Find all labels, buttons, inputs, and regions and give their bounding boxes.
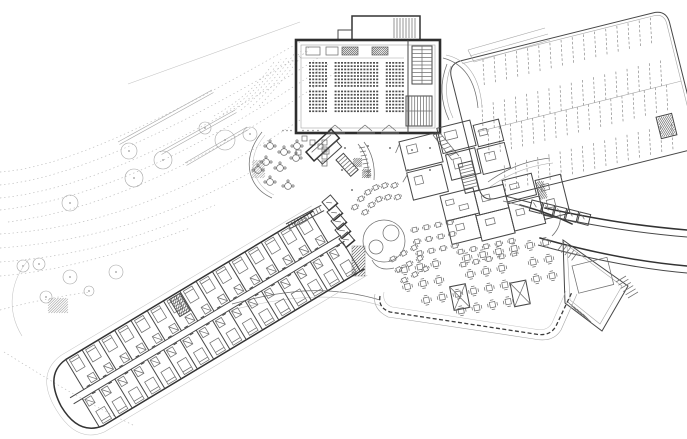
dining-table [421,295,432,306]
tree [33,258,45,270]
dining-table [430,258,441,269]
wing-room [529,200,542,213]
dining-table [524,240,535,251]
site-boundary-line [128,22,300,84]
stair-east [406,96,432,126]
column-dot [429,169,431,171]
round-table [264,140,276,150]
dining-table [484,282,495,293]
dining-table [487,299,498,310]
dining-table [499,279,510,290]
round-table [264,176,276,186]
promenade-path [228,291,382,311]
round-table [278,146,290,156]
stage-tower [338,16,420,40]
tree [121,143,137,159]
threshold-dots [312,130,314,132]
terrace-edge [12,258,30,336]
terrace-edge [375,294,577,340]
auditorium [282,16,482,160]
cafe [249,129,358,198]
column-dot [429,147,431,149]
dining-table [456,305,467,316]
service-station [510,280,530,307]
dining-table [547,270,558,281]
tree [215,130,235,150]
circular-lounge [363,220,405,269]
table-cluster [411,219,459,256]
column-dot [341,169,343,171]
drive-arc [443,58,478,108]
round-table [282,180,294,190]
seating-area [309,62,404,112]
floor-plan-canvas [0,0,687,439]
table-cluster [389,244,430,284]
rooms-south [82,242,360,428]
threshold-dots [307,130,309,132]
dining-table [465,269,476,280]
dining-table [493,246,504,257]
tree [243,127,257,141]
threshold-dots [302,130,304,132]
rooms-north [66,213,328,390]
site-landscape [0,22,336,426]
corridor [70,235,341,398]
parking-garage [448,10,687,202]
retaining-walls [118,90,249,166]
dining-table [531,273,542,284]
parking-stalls [466,18,682,194]
stair-north [412,46,432,84]
dining-table [433,275,444,286]
dining-terrace [375,237,577,340]
colonnade [380,292,572,335]
stair-fan [568,302,591,322]
floor-plan-drawing [0,0,687,439]
dining-table [480,266,491,277]
hotel-wing [33,199,367,439]
table-cluster [347,176,404,219]
office-room [477,142,510,174]
reception-desk [306,129,345,167]
tree [109,265,123,279]
dining-table [418,278,429,289]
round-table [291,140,303,150]
planter [322,154,327,159]
threshold-dots [317,130,319,132]
column-dot [407,169,409,171]
dining-table [503,296,514,307]
curved-ramp [358,142,374,180]
trees [17,122,257,303]
threshold-dots [282,130,284,132]
square-table [302,136,307,141]
tree [17,260,29,272]
dining-table [437,292,448,303]
tree [125,169,143,187]
dining-table [528,257,539,268]
connector-rooms [322,195,354,247]
lobby [341,142,518,284]
service-room [476,208,515,241]
column-dot [351,189,353,191]
balcony-boxes [306,47,388,55]
lounge-tables [347,176,519,284]
cafe-tables [252,136,329,189]
tree [84,286,94,296]
escalator [286,205,324,229]
round-table [274,162,286,172]
threshold-dots [290,130,292,132]
planter-hatch [362,169,371,178]
column-dot [344,147,346,149]
dining-table [468,285,479,296]
dining-table [543,254,554,265]
dining-table [471,302,482,313]
column-dot [389,147,391,149]
dining-table [496,263,507,274]
connector-room [322,195,337,210]
shrub-hatch [48,298,68,313]
tree [62,195,78,211]
tree [63,270,77,284]
threshold-dots [286,130,288,132]
dining-table [452,289,463,300]
column-dot [411,149,413,151]
dining-tables [399,237,562,327]
wing-stair [170,293,191,316]
